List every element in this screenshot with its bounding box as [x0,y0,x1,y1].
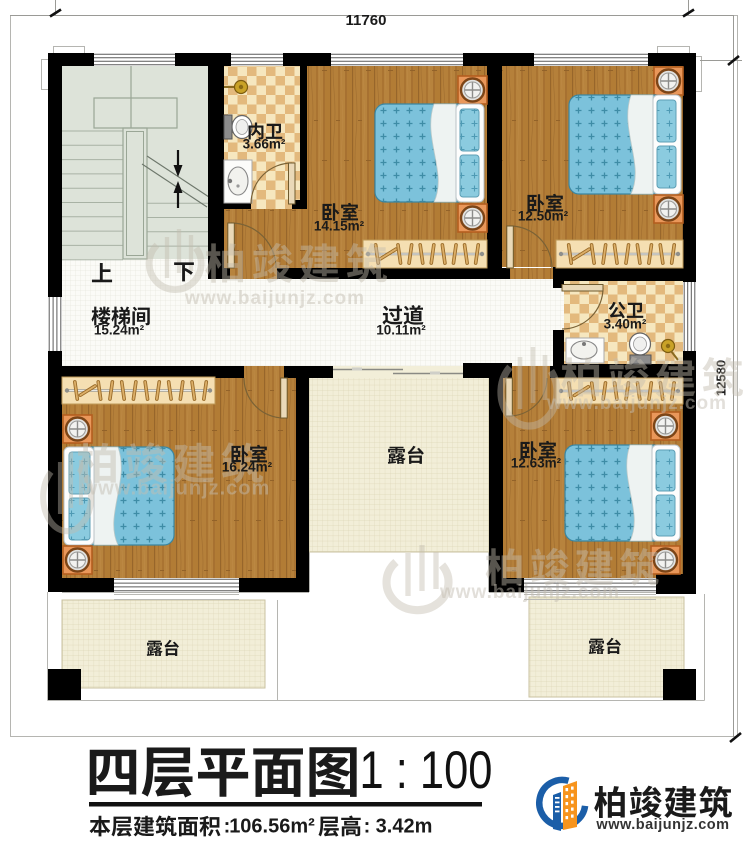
svg-text:3.42m: 3.42m [376,815,433,837]
svg-text::: : [364,815,371,837]
svg-text:www.baijunjz.com: www.baijunjz.com [184,288,365,309]
svg-text:www.baijunjz.com: www.baijunjz.com [595,817,729,833]
svg-text:www.baijunjz.com: www.baijunjz.com [546,393,727,414]
svg-text:12.50m²: 12.50m² [518,209,569,224]
svg-text:3.40m²: 3.40m² [604,317,647,332]
svg-text:14.15m²: 14.15m² [314,219,365,234]
svg-text:12.63m²: 12.63m² [511,456,562,471]
svg-text:1 : 100: 1 : 100 [360,741,493,800]
svg-text:www.baijunjz.com: www.baijunjz.com [81,477,271,499]
svg-text:106.56m²: 106.56m² [229,815,315,837]
svg-text:3.66m²: 3.66m² [243,137,286,152]
svg-text:16.24m²: 16.24m² [222,460,273,475]
svg-text:11760: 11760 [346,12,387,29]
svg-text:15.24m²: 15.24m² [94,323,145,338]
svg-text:10.11m²: 10.11m² [376,323,426,338]
svg-text:www.baijunjz.com: www.baijunjz.com [439,582,620,603]
